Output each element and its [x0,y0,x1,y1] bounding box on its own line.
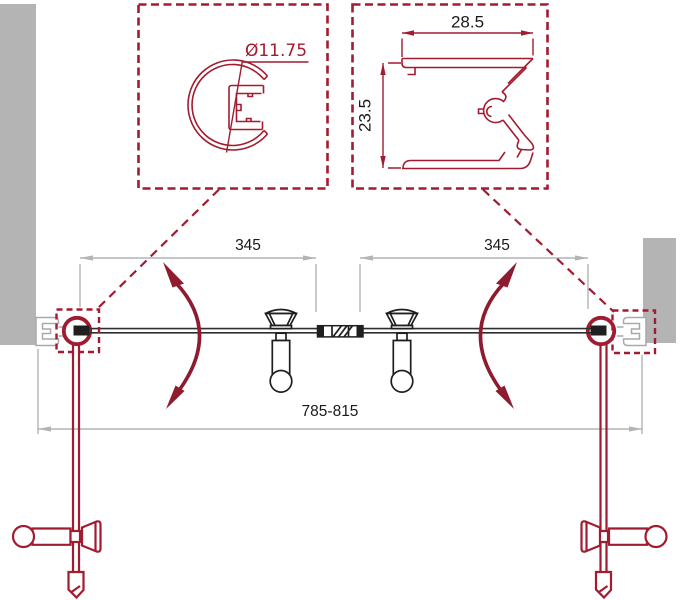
door-knob-right [387,310,418,393]
hinge-right [588,318,614,344]
hinge-left [64,318,90,344]
side-panel-right [596,344,611,598]
glass-clamp-right [591,326,607,336]
dimension-left-door-width: 345 [80,237,316,312]
dimension-profile-height: 23.5 [356,63,402,168]
technical-drawing-canvas: 345 345 785-815 [0,0,680,600]
wall-left [0,4,36,345]
door-knob-left [266,310,297,393]
wall-profile-right-plan [617,318,646,346]
profile-width-label: 28.5 [451,13,484,32]
leader-line-left [95,190,219,312]
detail-box-wall-profile: 28.5 23.5 [353,5,548,189]
hinge-diameter-label: Ø11.75 [245,41,307,61]
swing-arrow-right [480,262,517,409]
wall-profile-left-plan [36,318,65,346]
profile-height-label: 23.5 [356,99,375,132]
right-door-width-label: 345 [484,237,510,254]
panel-end-cap-left [69,572,84,598]
swing-arrow-left [163,262,200,409]
detail-box-hinge-profile: Ø11.75 [139,5,328,189]
wall-profile-drawing [402,59,534,169]
diameter-leader-line [227,61,309,153]
handle-right [582,521,667,551]
handle-ball-left [13,526,34,547]
left-door-width-label: 345 [235,237,261,254]
glass-clamp-left [74,326,90,336]
wall-right [643,238,676,343]
handle-ball-right [646,526,667,547]
magnetic-seal [318,326,364,337]
handle-left [13,521,101,551]
dimension-profile-width: 28.5 [402,13,533,58]
overall-width-label: 785-815 [302,403,359,420]
hinge-profile-drawing [188,60,267,150]
dimension-right-door-width: 345 [360,237,588,312]
shower-door-diagram: 345 345 785-815 [0,0,680,600]
dimension-overall-width: 785-815 [38,349,642,434]
side-panel-left [69,344,84,598]
panel-end-cap-right [596,572,611,598]
